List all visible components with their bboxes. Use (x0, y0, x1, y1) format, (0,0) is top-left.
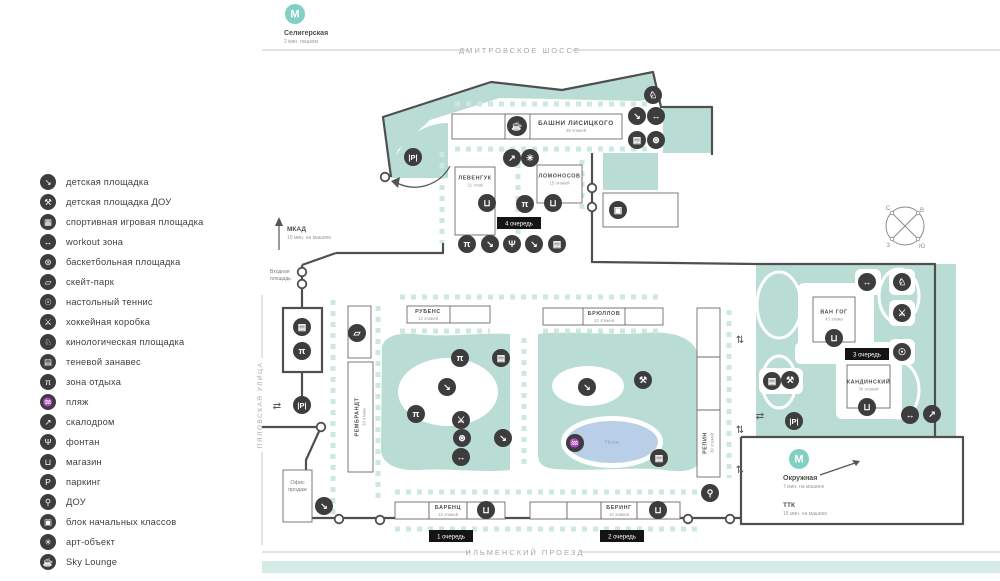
building-rembrandt[interactable]: РЕМБРАНДТ33 этажа (348, 362, 373, 472)
basketball-icon-glyph: ⊛ (652, 135, 660, 145)
building-outline (348, 362, 373, 472)
store-icon-glyph: ⊔ (549, 198, 556, 208)
building-floors: 43 этажа (825, 317, 843, 322)
landscape-rect (663, 108, 712, 153)
building-floors: 39 этажей (566, 128, 587, 133)
playground-icon: ↘ (494, 429, 512, 447)
workout-icon-glyph: ↔ (906, 410, 915, 420)
store-icon: ⊔ (40, 454, 56, 470)
queue-badge-label: 4 очередь (505, 222, 533, 228)
basketball-icon-glyph: ⊛ (458, 433, 466, 443)
ttk-label: ТТК (783, 502, 795, 509)
road-node (335, 515, 344, 524)
building-bering[interactable]: БЕРИНГ14 этажей (601, 502, 637, 519)
building-floors: 13 этажей (438, 512, 459, 517)
road-node (376, 516, 385, 525)
rest-area-icon: π (451, 349, 469, 367)
parking-icon-glyph: |P| (297, 401, 306, 410)
queue-badge: 3 очередь (845, 348, 889, 360)
shade-canopy-icon: ▤ (492, 349, 510, 367)
fountain-icon: Ψ (40, 434, 56, 450)
compass-tip (890, 211, 894, 215)
legend-item-label: фонтан (66, 437, 100, 447)
internal-road (741, 437, 963, 524)
building-bering-wing1 (530, 502, 567, 519)
ttk-note: 15 мин. на машине (783, 511, 827, 517)
table-tennis-icon: ☉ (40, 294, 56, 310)
playground-icon: ↘ (315, 497, 333, 515)
building-bering-wing2 (567, 502, 601, 519)
building-floors: 21 этаж (467, 183, 482, 188)
compass-w: З (886, 243, 890, 249)
basketball-icon: ⊛ (453, 429, 471, 447)
shade-canopy-icon: ▤ (293, 318, 311, 336)
legend-item-label: спортивная игровая площадка (66, 217, 204, 227)
building-sales-office: Офиспродаж (283, 470, 312, 522)
building-outline (530, 502, 567, 519)
shade-canopy-icon-glyph: ▤ (298, 322, 307, 332)
compass: СВЗЮ (886, 206, 925, 250)
dog-park-icon: ♘ (893, 273, 911, 291)
parking-icon-glyph: |P| (408, 153, 417, 162)
legend-item-climbing-wall: ↗скалодром (40, 412, 265, 432)
playground-dou-icon-glyph: ⚒ (786, 375, 794, 385)
street-label-dmitrovskoe: ДМИТРОВСКОЕ ШОССЕ (459, 46, 581, 55)
two-way-arrow: ⇅ (736, 335, 744, 346)
legend-item-label: ДОУ (66, 497, 86, 507)
store-icon-glyph: ⊔ (863, 402, 870, 412)
compass-tip (890, 237, 894, 241)
landscape-rect (603, 153, 658, 190)
internal-road (262, 427, 321, 470)
playground-icon-glyph: ↘ (583, 382, 591, 392)
legend-item-sports-court: ▦спортивная игровая площадка (40, 212, 265, 232)
pond-label: Пляж (605, 440, 619, 446)
street-green-band (262, 561, 1000, 573)
compass-tip (916, 237, 920, 241)
building-name: БРЮЛЛОВ (588, 311, 621, 317)
playground-icon: ↘ (628, 107, 646, 125)
playground-dou-icon: ⚒ (634, 371, 652, 389)
store-icon: ⊔ (858, 398, 876, 416)
building-name: БАШНИ ЛИСИЦКОГО (538, 120, 614, 127)
sky-lounge-icon: ☕ (40, 554, 56, 570)
compass-s: Ю (919, 244, 925, 250)
legend-item-label: хоккейная коробка (66, 317, 150, 327)
two-way-arrow: ⇅ (736, 425, 744, 436)
skate-park-icon: ▱ (348, 324, 366, 342)
building-floors: 15 этажей (549, 181, 570, 186)
parking-icon: |P| (404, 148, 422, 166)
legend-item-dog-park: ♘кинологическая площадка (40, 332, 265, 352)
rest-area-icon: π (516, 195, 534, 213)
workout-icon-glyph: ↔ (863, 277, 872, 287)
road-node (317, 423, 326, 432)
internal-road (336, 243, 443, 253)
legend-item-beach: ♒пляж (40, 392, 265, 412)
road-node (726, 515, 735, 524)
building-rubens[interactable]: РУБЕНС13 этажей (407, 306, 490, 323)
entrance-plaza-label: площадь (270, 276, 291, 282)
playground-icon-glyph: ↘ (486, 239, 494, 249)
building-outline (283, 470, 312, 522)
building-outline (283, 308, 322, 372)
metro-note: 2 мин. пешком (284, 39, 318, 45)
legend-item-rest-area: πзона отдыха (40, 372, 265, 392)
legend-item-playground-dou: ⚒детская площадка ДОУ (40, 192, 265, 212)
legend-item-label: зона отдыха (66, 377, 121, 387)
parking-icon: |P| (785, 412, 803, 430)
workout-icon: ↔ (901, 406, 919, 424)
legend-item-basketball: ⊛баскетбольная площадка (40, 252, 265, 272)
shade-canopy-icon: ▤ (628, 131, 646, 149)
kindergarten-icon: ⚲ (701, 484, 719, 502)
table-tennis-icon: ☉ (893, 343, 911, 361)
playground-dou-icon-glyph: ⚒ (639, 375, 647, 385)
building-bryullov[interactable]: БРЮЛЛОВ13 этажей (543, 308, 663, 325)
dog-park-icon-glyph: ♘ (649, 90, 657, 100)
store-icon: ⊔ (544, 194, 562, 212)
legend-item-label: детская площадка ДОУ (66, 197, 171, 207)
kindergarten-icon-glyph: ⚲ (707, 488, 714, 498)
rest-area-icon-glyph: π (522, 199, 529, 209)
legend-item-label: паркинг (66, 477, 101, 487)
legend-item-label: баскетбольная площадка (66, 257, 181, 267)
legend-item-label: настольный теннис (66, 297, 153, 307)
entrance-plaza-label: Входная (270, 269, 290, 275)
shade-canopy-icon: ▤ (650, 449, 668, 467)
legend-item-label: арт-объект (66, 537, 115, 547)
beach-icon-glyph: ♒ (569, 437, 580, 448)
legend-item-primary-school: ▣блок начальных классов (40, 512, 265, 532)
shade-canopy-icon-glyph: ▤ (497, 353, 506, 363)
playground-icon: ↘ (578, 378, 596, 396)
legend-item-fountain: Ψфонтан (40, 432, 265, 452)
metro-name: Окружная (783, 475, 817, 482)
store-icon: ⊔ (477, 501, 495, 519)
building-outline (697, 308, 720, 477)
two-way-arrow: ⇄ (273, 401, 281, 412)
queue-badge-label: 3 очередь (853, 353, 881, 359)
store-icon: ⊔ (825, 329, 843, 347)
legend-item-label: блок начальных классов (66, 517, 176, 527)
playground-dou-icon: ⚒ (40, 194, 56, 210)
primary-school-icon: ▣ (40, 514, 56, 530)
rest-area-icon-glyph: π (299, 346, 306, 356)
building-name: РУБЕНС (415, 309, 441, 315)
masterplan-page: ↘детская площадка⚒детская площадка ДОУ▦с… (0, 0, 1000, 581)
building-name: БАРЕНЦ (435, 505, 461, 511)
legend-item-parking: Pпаркинг (40, 472, 265, 492)
art-object-icon: ✳ (40, 534, 56, 550)
hockey-rink-icon: ⚔ (893, 304, 911, 322)
primary-school-icon-glyph: ▣ (614, 205, 623, 215)
compass-e: В (920, 208, 924, 214)
rest-area-icon: π (40, 374, 56, 390)
hockey-rink-icon-glyph: ⚔ (457, 415, 465, 425)
workout-icon: ↔ (647, 107, 665, 125)
store-icon-glyph: ⊔ (830, 333, 837, 343)
building-name: РЕПИН (703, 432, 709, 454)
fountain-icon-glyph: Ψ (508, 239, 515, 249)
store-icon-glyph: ⊔ (483, 198, 490, 208)
rest-area-icon-glyph: π (457, 353, 464, 363)
building-name: РЕМБРАНДТ (355, 397, 361, 436)
playground-icon-glyph: ↘ (530, 239, 538, 249)
playground-icon: ↘ (438, 378, 456, 396)
building-lisitsky[interactable]: БАШНИ ЛИСИЦКОГО39 этажей (452, 114, 622, 139)
climbing-wall-icon-glyph: ↗ (928, 409, 936, 419)
entry-arrowhead (391, 177, 400, 188)
climbing-wall-icon: ↗ (503, 149, 521, 167)
sales-office-label: продаж (288, 487, 307, 493)
sky-lounge-icon-glyph: ☕ (511, 120, 522, 131)
dog-park-icon: ♘ (644, 86, 662, 104)
shade-canopy-icon: ▤ (548, 235, 566, 253)
workout-icon-glyph: ↔ (457, 452, 466, 462)
legend-item-workout: ↔workout зона (40, 232, 265, 252)
workout-icon: ↔ (858, 273, 876, 291)
hockey-rink-icon: ⚔ (452, 411, 470, 429)
skate-park-icon-glyph: ▱ (353, 328, 362, 338)
primary-school-icon: ▣ (609, 201, 627, 219)
building-floors: 13 этажей (418, 316, 439, 321)
playground-icon-glyph: ↘ (443, 382, 451, 392)
building-floors: 36 этажей (858, 387, 879, 392)
metro-name: Селигерская (284, 30, 328, 37)
legend-item-label: детская площадка (66, 177, 149, 187)
playground-icon: ↘ (525, 235, 543, 253)
building-name: ВАН ГОГ (820, 310, 847, 316)
building-outline (567, 502, 601, 519)
legend-item-art-object: ✳арт-объект (40, 532, 265, 552)
legend-item-label: теневой занавес (66, 357, 141, 367)
dog-park-icon-glyph: ♘ (898, 277, 906, 287)
building-name: БЕРИНГ (606, 505, 632, 511)
dog-park-icon: ♘ (40, 334, 56, 350)
legend-item-label: кинологическая площадка (66, 337, 184, 347)
playground-dou-icon: ⚒ (781, 371, 799, 389)
art-object-icon: ✳ (521, 149, 539, 167)
playground-icon-glyph: ↘ (320, 501, 328, 511)
parking-icon: |P| (293, 396, 311, 414)
hockey-rink-icon-glyph: ⚔ (898, 308, 906, 318)
building-floors: 39 этажей (710, 432, 715, 453)
sports-court-icon: ▦ (40, 214, 56, 230)
legend-item-label: пляж (66, 397, 89, 407)
metro-marker-seligerskaya[interactable]: МСелигерская2 мин. пешком (284, 4, 328, 45)
building-floors: 14 этажей (609, 512, 630, 517)
building-barenz-wing (395, 502, 429, 519)
metro-marker-okruzhnaya[interactable]: МОкружная7 мин. на машине (783, 449, 825, 490)
legend-item-table-tennis: ☉настольный теннис (40, 292, 265, 312)
metro-letter: М (290, 9, 299, 21)
store-icon: ⊔ (649, 501, 667, 519)
rest-area-icon: π (407, 405, 425, 423)
store-icon: ⊔ (478, 194, 496, 212)
legend-item-playground: ↘детская площадка (40, 172, 265, 192)
building-name: ЛЕВЕНГУК (458, 176, 491, 182)
queue-badge-label: 2 очередь (608, 535, 636, 541)
queue-badge: 4 очередь (497, 217, 541, 229)
sky-lounge-icon: ☕ (507, 116, 527, 136)
queue-badge: 2 очередь (600, 530, 644, 542)
legend-item-store: ⊔магазин (40, 452, 265, 472)
metro-note: 7 мин. на машине (783, 484, 825, 490)
art-object-icon-glyph: ✳ (526, 153, 534, 163)
legend-item-label: скалодром (66, 417, 115, 427)
legend-item-skate-park: ▱скейт-парк (40, 272, 265, 292)
skate-park-icon: ▱ (40, 274, 56, 290)
playground-icon: ↘ (40, 174, 56, 190)
road-node (381, 173, 390, 182)
legend-item-shade-canopy: ▤теневой занавес (40, 352, 265, 372)
shade-canopy-icon-glyph: ▤ (768, 376, 777, 386)
climbing-wall-icon: ↗ (40, 414, 56, 430)
playground-icon: ↘ (481, 235, 499, 253)
shade-canopy-icon-glyph: ▤ (633, 135, 642, 145)
legend-item-kindergarten: ⚲ДОУ (40, 492, 265, 512)
legend-item-sky-lounge: ☕Sky Lounge (40, 552, 265, 572)
two-way-arrow: ⇅ (736, 465, 744, 476)
two-way-arrow: ⇄ (756, 411, 764, 422)
building-floors: 13 этажей (594, 318, 615, 323)
climbing-wall-icon-glyph: ↗ (508, 153, 516, 163)
parking-icon: P (40, 474, 56, 490)
shade-canopy-icon: ▤ (763, 372, 781, 390)
mkad-arrowhead (275, 217, 283, 226)
basketball-icon: ⊛ (647, 131, 665, 149)
basketball-icon: ⊛ (40, 254, 56, 270)
legend-item-label: workout зона (66, 237, 123, 247)
rest-area-icon: π (293, 342, 311, 360)
store-icon-glyph: ⊔ (654, 505, 661, 515)
okruzhnaya-arrow (820, 463, 855, 475)
store-icon-glyph: ⊔ (482, 505, 489, 515)
internal-road (302, 253, 336, 265)
road-node (588, 203, 597, 212)
beach-icon: ♒ (566, 434, 584, 452)
metro-letter: М (794, 454, 803, 466)
rest-area-icon-glyph: π (413, 409, 420, 419)
mkad-note: 10 мин. на машине (287, 235, 331, 241)
legend-item-hockey-rink: ⚔хоккейная коробка (40, 312, 265, 332)
street-label-ilmensky: ИЛЬМЕНСКИЙ ПРОЕЗД (466, 548, 585, 557)
building-floors: 33 этажа (362, 408, 367, 426)
building-barenz[interactable]: БАРЕНЦ13 этажей (429, 502, 467, 519)
queue-badge: 1 очередь (429, 530, 473, 542)
table-tennis-icon-glyph: ☉ (898, 347, 906, 357)
legend: ↘детская площадка⚒детская площадка ДОУ▦с… (40, 172, 265, 572)
building-repin[interactable]: РЕПИН39 этажей (697, 308, 720, 477)
kindergarten-icon: ⚲ (40, 494, 56, 510)
workout-icon: ↔ (452, 448, 470, 466)
shade-canopy-icon-glyph: ▤ (655, 453, 664, 463)
building-name: ЛОМОНОСОВ (539, 174, 581, 180)
hockey-rink-icon: ⚔ (40, 314, 56, 330)
road-node (298, 268, 307, 277)
road-node (298, 280, 307, 289)
workout-icon: ↔ (40, 234, 56, 250)
shade-canopy-icon: ▤ (40, 354, 56, 370)
queue-badge-label: 1 очередь (437, 535, 465, 541)
rest-area-icon-glyph: π (464, 239, 471, 249)
parking-icon-glyph: |P| (789, 417, 798, 426)
sales-office-label: Офис (290, 480, 305, 486)
road-node (588, 184, 597, 193)
playground-icon-glyph: ↘ (633, 111, 641, 121)
beach-icon: ♒ (40, 394, 56, 410)
playground-icon-glyph: ↘ (499, 433, 507, 443)
fountain-icon: Ψ (503, 235, 521, 253)
building-canopy-box (283, 308, 322, 372)
rest-area-icon: π (458, 235, 476, 253)
legend-item-label: Sky Lounge (66, 557, 117, 567)
legend-item-label: магазин (66, 457, 102, 467)
climbing-wall-icon: ↗ (923, 405, 941, 423)
building-outline (395, 502, 429, 519)
compass-n: С (886, 206, 891, 212)
legend-item-label: скейт-парк (66, 277, 114, 287)
road-node (684, 515, 693, 524)
building-name: КАНДИНСКИЙ (847, 378, 891, 386)
workout-icon-glyph: ↔ (652, 111, 661, 121)
mkad-label: МКАД (287, 226, 306, 233)
shade-canopy-icon-glyph: ▤ (553, 239, 562, 249)
